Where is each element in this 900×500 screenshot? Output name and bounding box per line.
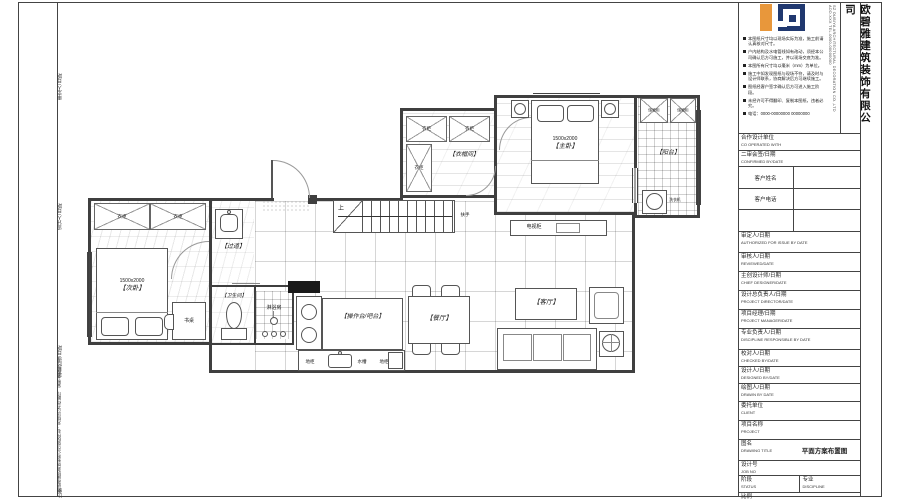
sofa-cushion	[563, 334, 591, 361]
bed-size-label: 1500x2000	[531, 136, 599, 142]
tb-row-reviewed: 审核人/日期REVIEWED/DATE	[738, 253, 860, 272]
bath-pocket-door	[232, 283, 260, 284]
client-phone-value-cell	[794, 189, 860, 209]
note-item: 施工中如发现图纸与现场不符，请及时与设计师联系，协商解决后方可继续施工。	[743, 71, 825, 81]
handrail-label: 扶手	[458, 212, 472, 218]
kitchen-counter-solid	[288, 281, 320, 293]
wall	[497, 212, 637, 215]
title-block: 合作设计单位CO OPERATED WITH 二审会签/日期CONFIRMED …	[738, 133, 860, 500]
tb-row-authorized: 审定人/日期AUTHORIZED FOR ISSUE BY DATE	[738, 232, 860, 253]
wall	[494, 95, 497, 215]
pillow	[135, 317, 163, 336]
kitchen-sink	[328, 354, 352, 368]
tb-row-job-no: 设计号JOB NO	[738, 461, 860, 476]
tb-row-project: 项目名称PROJECT	[738, 421, 860, 440]
wall	[634, 215, 700, 218]
tb-row-confirmed: 二审会签/日期CONFIRMED BY/DATE	[738, 151, 860, 167]
cabinet-label: 地柜	[300, 359, 320, 365]
storage-cabinet: 储物柜	[640, 98, 668, 123]
master-window	[533, 93, 600, 98]
wall	[634, 98, 637, 168]
company-fine-print: SZ OUBIYA ARCHITECTURAL DECORATION CO.,L…	[828, 5, 836, 129]
bed-size-label: 1500x2000	[96, 278, 168, 284]
wardrobe: 衣柜	[449, 116, 490, 142]
tb-row-client-phone: 客户电话	[738, 189, 860, 210]
bullet-icon	[743, 64, 746, 67]
company-name-vertical: 欧碧雅建筑装饰有限公司	[843, 4, 873, 132]
balcony-window	[696, 110, 701, 205]
tb-row-blank	[738, 210, 860, 232]
wall	[212, 343, 294, 345]
tb-row-chief-designer: 主创设计师/日期CHIEF DESIGNER/DATE	[738, 272, 860, 291]
stair-rail-line	[338, 216, 452, 217]
bullet-icon	[743, 85, 746, 88]
wardrobe: 衣柜	[150, 203, 206, 230]
wall	[634, 203, 637, 215]
tb-row-checked: 校对人/日期CHECKED BY/DATE	[738, 350, 860, 367]
tv	[556, 223, 580, 233]
wall	[400, 108, 403, 198]
wall	[212, 285, 294, 287]
bullet-icon	[743, 72, 746, 75]
logo-orange-bar	[760, 4, 772, 31]
floor-plan: 衣柜 衣柜 1500x2000 【次卧】 书桌 【过道】 【卫生间】 淋浴房 【…	[0, 0, 738, 500]
wardrobe: 衣柜	[406, 144, 432, 192]
tb-row-scale: 比例SCALE	[738, 493, 860, 500]
tb-row-client: 委托单位CLIENT	[738, 402, 860, 421]
burner	[301, 327, 317, 343]
note-item: 本图纸尺寸均以现场实际为准，施工前请认真核对尺寸。	[743, 36, 825, 46]
dining-chair	[441, 343, 460, 355]
bullet-icon	[743, 50, 746, 53]
wardrobe: 衣柜	[94, 203, 150, 230]
bullet-icon	[743, 37, 746, 40]
wall	[88, 198, 212, 201]
client-name-value-cell	[794, 167, 860, 188]
wall	[212, 370, 635, 373]
tb-row-status-discipline: 阶段STATUS 专业DISCIPLINE	[738, 476, 860, 493]
drain	[271, 331, 277, 337]
shower-head	[270, 317, 278, 325]
wall	[400, 108, 497, 111]
washer-drum	[646, 193, 663, 210]
sink-faucet	[338, 351, 342, 355]
wall	[212, 198, 274, 201]
tv-cabinet-label: 电视柜	[514, 224, 554, 230]
pillow	[537, 105, 564, 122]
tb-row-cooperated: 合作设计单位CO OPERATED WITH	[738, 134, 860, 151]
drawing-title-value: 平面方案布置图	[789, 440, 860, 460]
lamp	[514, 103, 526, 115]
tb-row-discipline-resp: 专业负责人/日期DISCIPLINE RESPONSIBLE BY DATE	[738, 329, 860, 350]
burner	[301, 304, 317, 320]
note-item: 图纸经客户签字确认后方可进入施工阶段。	[743, 84, 825, 94]
company-column-divider	[840, 2, 841, 133]
balcony-label: 【阳台】	[640, 150, 696, 158]
kitchen-island	[322, 298, 403, 350]
desk-label: 书桌	[172, 318, 206, 324]
bathroom-label: 【卫生间】	[213, 293, 255, 299]
washer-label: 洗衣机	[668, 198, 682, 202]
living-label: 【客厅】	[515, 299, 577, 307]
note-item: 未经许可不得翻印、复制本图纸，违者必究。	[743, 98, 825, 108]
shower-stem	[273, 311, 274, 317]
discipline-cell: 专业DISCIPLINE	[800, 476, 861, 492]
entry-door-arc	[273, 160, 310, 198]
sofa-cushion	[533, 334, 562, 361]
pillow	[567, 105, 594, 122]
bedroom2-window	[87, 252, 92, 337]
bullet-icon	[743, 99, 746, 102]
master-label: 【主卧】	[531, 143, 599, 151]
tb-row-client-name: 客户姓名	[738, 167, 860, 189]
dining-label: 【餐厅】	[408, 315, 470, 323]
logo-inner-square	[789, 15, 796, 22]
island-label: 【操作台/吧台】	[322, 314, 403, 322]
washbasin	[220, 214, 238, 232]
sink-label: 水槽	[352, 359, 372, 365]
note-item: 电话：0000-00000000 00000000	[743, 111, 825, 116]
general-notes: 本图纸尺寸均以现场实际为准，施工前请认真核对尺寸。 户内结构及水电管线如有改动，…	[743, 36, 825, 119]
closet-label: 【衣帽间】	[434, 152, 494, 160]
lamp	[604, 103, 616, 115]
dishwasher	[388, 352, 403, 369]
plant-cross-v	[611, 334, 612, 352]
tb-row-project-manager: 项目经理/日期PROJECT MANAGER/DATE	[738, 310, 860, 329]
logo-notch	[778, 21, 787, 27]
wardrobe: 衣柜	[406, 116, 447, 142]
bullet-icon	[743, 112, 746, 115]
company-logo	[760, 4, 806, 31]
toilet-tank	[221, 328, 247, 340]
bedroom2-label: 【次卧】	[96, 285, 168, 293]
bed-blanket-line	[531, 160, 599, 161]
tb-row-designed: 设计人/日期DESIGNED BY/DATE	[738, 367, 860, 384]
sofa-cushion	[503, 334, 532, 361]
storage-cabinet: 储物柜	[670, 98, 696, 123]
shower-label: 淋浴房	[257, 305, 291, 311]
tb-row-drawn: 绘图人/日期DRAWN BY DATE	[738, 384, 860, 402]
note-item: 户内结构及水电管线如有改动，须经本公司确认后方可施工，并以现场交底为准。	[743, 49, 825, 59]
wall	[292, 285, 294, 345]
wall	[88, 342, 212, 345]
bed-blanket-line	[96, 312, 168, 313]
wall	[400, 195, 497, 198]
note-item: 本图所有尺寸均以毫米（mm）为单位。	[743, 63, 825, 68]
drain	[262, 331, 268, 337]
entry-mat	[262, 200, 310, 212]
tb-row-drawing-title: 图名DRAWING TITLE 平面方案布置图	[738, 440, 860, 461]
armchair-seat	[594, 292, 619, 319]
tb-row-project-director: 设计总负责人/日期PROJECT DIRECTOR/DATE	[738, 291, 860, 310]
staircase	[333, 200, 455, 233]
status-cell: 阶段STATUS	[738, 476, 800, 492]
pillow	[101, 317, 129, 336]
drain	[280, 331, 286, 337]
plant-cross-h	[602, 342, 620, 343]
stairs-up-label: 上	[336, 206, 346, 214]
corridor-label: 【过道】	[210, 244, 256, 252]
wall	[632, 215, 635, 373]
dining-chair	[412, 343, 431, 355]
faucet	[227, 210, 231, 214]
balcony-sliding-door	[632, 168, 638, 203]
